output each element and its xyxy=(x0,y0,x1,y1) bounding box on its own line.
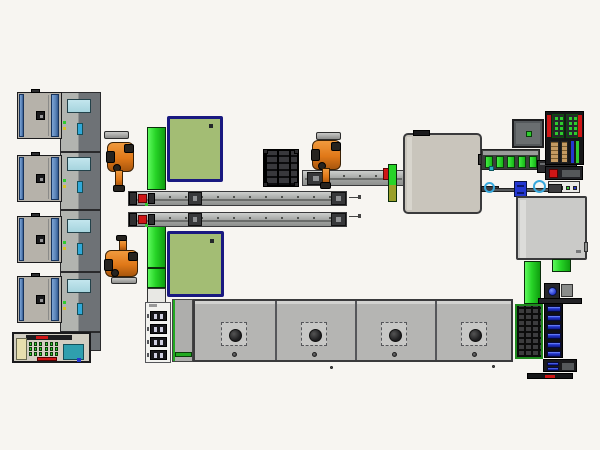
machine-seam xyxy=(48,158,49,199)
pallet-knob xyxy=(294,149,299,154)
machine-center-port xyxy=(36,174,45,183)
rail-holes xyxy=(153,217,340,219)
dimension-marker xyxy=(358,214,361,218)
terminal-gray xyxy=(562,363,574,370)
roller-green-cell xyxy=(529,156,537,168)
cell-notch xyxy=(584,242,588,252)
cell-top-fitting xyxy=(413,130,430,136)
shaft-blue-block[interactable] xyxy=(514,181,527,197)
machine-top-tab xyxy=(31,273,40,277)
connector-pin xyxy=(160,314,163,319)
actuator-block xyxy=(561,284,573,297)
io-connector-block[interactable] xyxy=(150,324,167,334)
dock-led xyxy=(29,342,32,346)
strip-divider xyxy=(148,267,165,269)
machine-section-divider xyxy=(275,301,277,360)
rail-clamp xyxy=(148,193,155,204)
cell-edge-strip xyxy=(520,200,526,258)
cabinet-green-line xyxy=(576,141,579,163)
rail-end-block xyxy=(129,213,137,226)
pallet-tray[interactable] xyxy=(263,149,299,187)
rail-carriage[interactable] xyxy=(188,213,202,226)
transfer-rail-1[interactable] xyxy=(128,191,347,206)
floor-mark xyxy=(492,365,495,368)
cabinet-led xyxy=(560,127,563,130)
cabinet-led xyxy=(574,122,577,125)
dock-led xyxy=(34,352,37,356)
press-station-plate[interactable] xyxy=(461,322,487,346)
led-block xyxy=(566,114,578,138)
process-cell-upper[interactable] xyxy=(403,133,482,214)
station-clip-blue xyxy=(77,181,83,193)
press-line-machine[interactable] xyxy=(193,299,513,362)
rail-holes xyxy=(153,196,340,198)
press-station-hole xyxy=(469,329,482,342)
cabinet-led xyxy=(555,122,558,125)
worktable-panel-lower[interactable] xyxy=(167,231,224,297)
press-station-pin xyxy=(392,352,397,357)
robot-wrist-dark xyxy=(111,269,119,277)
dock-led xyxy=(50,342,53,346)
rail-groove xyxy=(131,220,344,222)
connector-pin xyxy=(154,340,157,345)
cabinet-blue-line xyxy=(571,141,574,163)
robot-gripper xyxy=(113,185,125,192)
io-connector-block[interactable] xyxy=(150,311,167,321)
dimension-marker xyxy=(349,197,358,198)
machine-center-port xyxy=(36,111,45,120)
machine-top-tab xyxy=(31,152,40,156)
cell-mark xyxy=(576,250,581,253)
rail-clamp xyxy=(148,214,155,225)
station-led-green xyxy=(63,241,66,244)
press-station-pin xyxy=(312,352,317,357)
station-screen xyxy=(67,279,91,293)
machine-seam xyxy=(48,219,49,260)
station-clip-blue xyxy=(77,303,83,315)
infeed-green-bar xyxy=(175,352,192,357)
cell-edge-strip xyxy=(407,137,412,210)
base-red-mark xyxy=(545,375,555,378)
robot-gripper xyxy=(320,182,331,189)
io-connector-block[interactable] xyxy=(150,350,167,360)
dock-station-box[interactable] xyxy=(12,332,91,363)
cabinet-led xyxy=(555,132,558,135)
dock-led xyxy=(45,352,48,356)
machine-blue-bar-right xyxy=(51,278,59,321)
dock-led xyxy=(50,352,53,356)
port-pin xyxy=(40,178,43,181)
station-led-green xyxy=(63,301,66,304)
bus-bar-blue xyxy=(547,351,561,357)
robot-body[interactable] xyxy=(107,142,134,172)
floor-mark xyxy=(330,366,333,369)
rail-carriage[interactable] xyxy=(331,192,346,205)
led-block xyxy=(552,114,564,138)
cabinet-led xyxy=(569,127,572,130)
pallet-knob xyxy=(294,182,299,187)
station-machine[interactable] xyxy=(17,92,62,139)
junction-gray xyxy=(562,170,580,177)
bus-bar-blue xyxy=(547,333,561,339)
connector-pin xyxy=(154,353,157,358)
press-station-plate[interactable] xyxy=(221,322,247,346)
machine-blue-bar-left xyxy=(19,157,24,200)
cabinet-tan-panel xyxy=(561,141,568,163)
robot-base-disc xyxy=(104,131,129,139)
cabinet-led xyxy=(560,132,563,135)
transfer-rail-2[interactable] xyxy=(128,212,347,227)
connector-pin xyxy=(154,327,157,332)
cabinet-led xyxy=(574,132,577,135)
rail-carriage[interactable] xyxy=(188,192,202,205)
robot-gripper xyxy=(116,235,127,241)
bus-bar-blue xyxy=(547,315,561,321)
press-station-plate[interactable] xyxy=(301,322,327,346)
rail-groove xyxy=(131,199,344,201)
junction-red xyxy=(549,169,558,178)
station-clip-blue xyxy=(77,123,83,135)
actuator-blue-disc xyxy=(548,287,557,296)
press-station-hole xyxy=(389,329,402,342)
machine-top-tab xyxy=(31,89,40,93)
shaft-gripper xyxy=(548,184,562,193)
dimension-marker xyxy=(349,216,358,217)
machine-seam xyxy=(48,279,49,320)
pallet-knob xyxy=(263,182,268,187)
station-led-yellow xyxy=(63,307,66,310)
dock-led xyxy=(29,352,32,356)
connector-pin xyxy=(160,327,163,332)
buffer-strip-upper[interactable] xyxy=(147,127,166,190)
robot-base-disc xyxy=(316,132,341,140)
roller-green-cell xyxy=(496,156,504,168)
station-clip-blue xyxy=(77,243,83,255)
rail-end-block xyxy=(129,192,137,205)
robot-arm xyxy=(119,240,127,251)
tool-post-green xyxy=(388,164,397,202)
connector-pin xyxy=(154,314,157,319)
conveyor-sensor xyxy=(489,166,494,171)
station-screen xyxy=(67,219,91,233)
connector-side-nub xyxy=(147,353,149,357)
rail-red-carrier xyxy=(138,194,147,203)
machine-section-divider xyxy=(435,301,437,360)
connector-side-nub xyxy=(147,327,149,331)
connector-pin xyxy=(160,340,163,345)
machine-blue-bar-left xyxy=(19,218,24,261)
cabinet-red-bar xyxy=(547,115,551,137)
rail-divider xyxy=(61,151,100,153)
bus-terminal xyxy=(543,359,577,372)
dock-led xyxy=(39,352,42,356)
connector-side-nub xyxy=(147,340,149,344)
station-led-yellow xyxy=(63,247,66,250)
terminal-blue xyxy=(547,367,559,371)
robot-joint-dark xyxy=(311,149,320,161)
dimension-marker xyxy=(358,195,361,199)
worktable-panel-upper[interactable] xyxy=(167,116,223,182)
cabinet-led xyxy=(560,122,563,125)
machine-top-tab xyxy=(31,213,40,217)
robot-base-disc xyxy=(111,277,137,284)
dock-led xyxy=(50,347,53,351)
rail-green-pin xyxy=(145,203,148,206)
dock-led xyxy=(39,347,42,351)
infeed-strip xyxy=(172,299,193,362)
port-dot xyxy=(573,186,577,190)
robot-motor-dark xyxy=(124,144,134,153)
machine-center-port xyxy=(36,235,45,244)
rail-divider xyxy=(61,271,100,273)
station-screen xyxy=(67,157,91,171)
machine-top-edge xyxy=(195,301,511,304)
connector-pin xyxy=(160,353,163,358)
dock-led xyxy=(45,342,48,346)
station-led-yellow xyxy=(63,127,66,130)
machine-section-divider xyxy=(355,301,357,360)
pallet-knob xyxy=(263,149,268,154)
pcb-checker-panel[interactable] xyxy=(515,304,543,359)
machine-blue-bar-left xyxy=(19,278,24,321)
rail-green-pin xyxy=(145,224,148,227)
block-stripe xyxy=(517,192,524,194)
rail-red-carrier xyxy=(138,215,147,224)
io-connector-panel[interactable] xyxy=(145,302,171,363)
roller-green-cell xyxy=(518,156,526,168)
port-pin xyxy=(40,115,43,118)
dock-led xyxy=(29,347,32,351)
station-led-green xyxy=(63,179,66,182)
dock-led xyxy=(55,347,58,351)
block-stripe xyxy=(517,185,524,187)
port-pin xyxy=(40,239,43,242)
dock-yellow-panel xyxy=(16,338,27,360)
station-led-yellow xyxy=(63,185,66,188)
cabinet-led xyxy=(569,117,572,120)
cabinet-led xyxy=(555,117,558,120)
dock-red-bar xyxy=(37,357,57,361)
buffer-strip-lower[interactable] xyxy=(147,222,166,288)
panel-tab xyxy=(149,304,157,307)
control-panel-small[interactable] xyxy=(512,119,544,148)
dock-led xyxy=(55,352,58,356)
station-screen xyxy=(67,99,91,113)
dock-led xyxy=(39,342,42,346)
dock-led xyxy=(55,342,58,346)
cabinet-tan-panel xyxy=(550,141,559,163)
station-machine[interactable] xyxy=(17,155,62,202)
connector-side-nub xyxy=(147,314,149,318)
dock-led-cluster xyxy=(45,342,61,357)
machine-blue-bar-right xyxy=(51,94,59,137)
io-connector-block[interactable] xyxy=(150,337,167,347)
blue-bus-column[interactable] xyxy=(544,303,563,358)
junction-box xyxy=(545,166,583,180)
machine-center-port xyxy=(36,295,45,304)
machine-blue-bar-right xyxy=(51,218,59,261)
panel-pin xyxy=(210,239,214,243)
dock-red-lamp xyxy=(36,336,48,339)
machine-blue-bar-left xyxy=(19,94,24,137)
port-dot xyxy=(566,186,570,190)
electronics-cabinet[interactable] xyxy=(545,111,584,165)
press-station-hole xyxy=(229,329,242,342)
process-cell-lower[interactable] xyxy=(516,196,587,260)
power-led xyxy=(526,131,532,137)
dock-led xyxy=(45,347,48,351)
buffer-end-frame xyxy=(147,288,166,303)
machine-seam xyxy=(48,95,49,136)
robot-motor-dark xyxy=(331,142,341,151)
shaft-ring xyxy=(533,180,546,193)
robot-joint-dark xyxy=(106,151,115,163)
rail-carriage[interactable] xyxy=(331,213,346,226)
robot-body[interactable] xyxy=(105,250,138,277)
dock-led xyxy=(34,347,37,351)
cabinet-led xyxy=(560,117,563,120)
left-vertical-rail[interactable] xyxy=(60,92,101,351)
actuator-unit[interactable] xyxy=(544,283,560,299)
plant-layout-canvas xyxy=(0,0,600,450)
cabinet-led xyxy=(569,132,572,135)
base-rail xyxy=(527,373,573,379)
cabinet-led xyxy=(555,127,558,130)
press-station-plate[interactable] xyxy=(381,322,407,346)
bus-bar-blue xyxy=(547,324,561,330)
dock-top-rail xyxy=(26,335,72,340)
bus-bar-blue xyxy=(547,342,561,348)
press-station-pin xyxy=(232,352,237,357)
cabinet-led xyxy=(569,122,572,125)
dock-led xyxy=(34,342,37,346)
press-station-pin xyxy=(472,352,477,357)
press-station-hole xyxy=(309,329,322,342)
machine-blue-bar-right xyxy=(51,157,59,200)
rail-divider xyxy=(61,209,100,211)
robot-body[interactable] xyxy=(312,140,341,170)
conveyor-top-strip xyxy=(483,151,538,155)
cabinet-red-bar xyxy=(578,115,582,137)
station-machine[interactable] xyxy=(17,276,62,323)
dock-blue-pin xyxy=(77,358,81,362)
green-chute-horizontal xyxy=(552,259,571,272)
shaft-ring xyxy=(484,182,495,193)
terminal-blue xyxy=(547,362,559,366)
station-led-green xyxy=(63,121,66,124)
robot-motor-dark xyxy=(128,252,138,261)
dock-led-cluster xyxy=(29,342,42,357)
cabinet-led xyxy=(574,127,577,130)
cabinet-led xyxy=(574,117,577,120)
port-pin xyxy=(40,299,43,302)
bus-bar-blue xyxy=(547,306,561,312)
roller-green-cell xyxy=(507,156,515,168)
panel-pin xyxy=(209,124,213,128)
station-machine[interactable] xyxy=(17,216,62,263)
